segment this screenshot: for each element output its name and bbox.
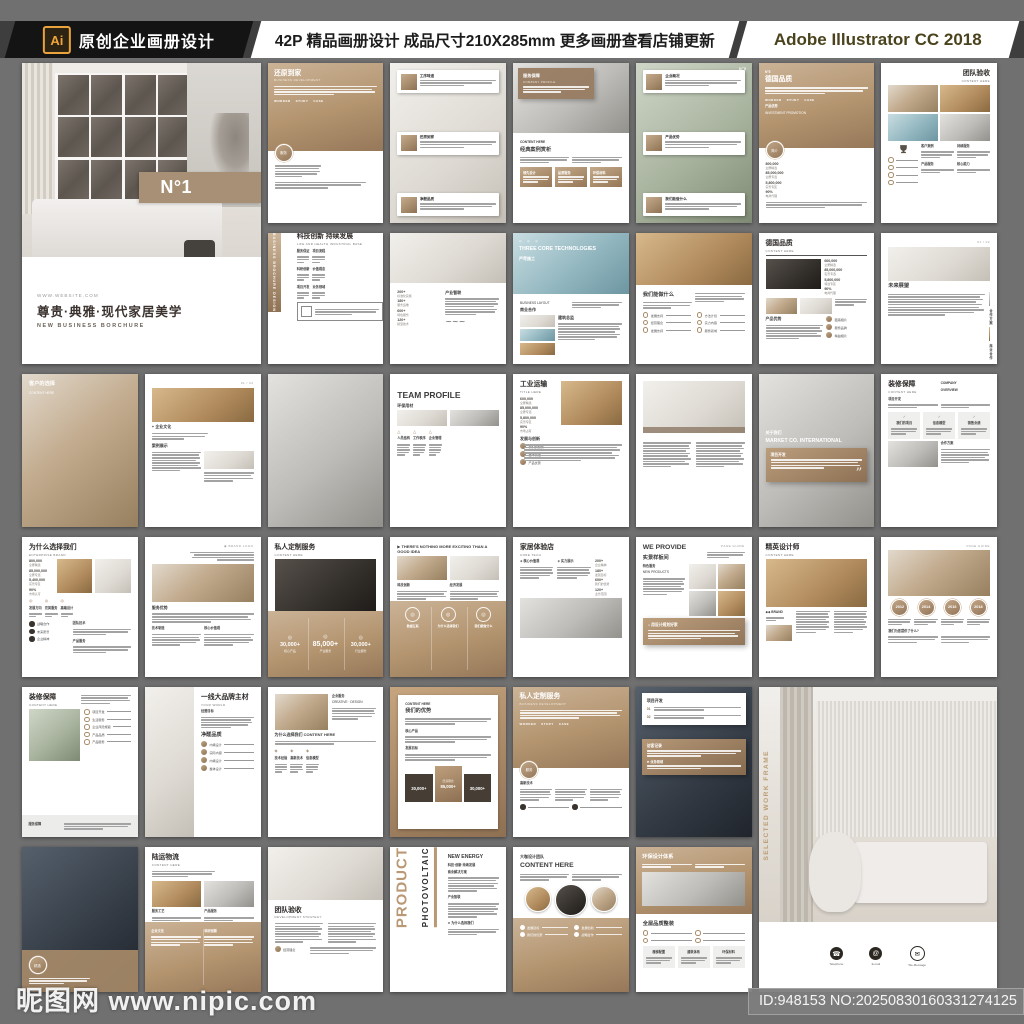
col: ◈ 实力展示 bbox=[557, 559, 590, 580]
message-icon: ✉ bbox=[910, 946, 925, 961]
line bbox=[306, 764, 319, 766]
line bbox=[716, 957, 742, 959]
cell bbox=[888, 403, 937, 409]
stat-icon: ◎ bbox=[359, 635, 363, 641]
pad: 大咖设计团队CONTENT HERE bbox=[513, 847, 629, 918]
photo-placeholder bbox=[397, 556, 446, 580]
text-label: COMPANY bbox=[941, 381, 990, 385]
bullet-item: 战略合作 bbox=[29, 621, 70, 627]
placeholder-lines bbox=[891, 427, 917, 436]
line bbox=[445, 311, 495, 313]
line bbox=[405, 723, 455, 725]
line bbox=[420, 203, 496, 205]
line bbox=[194, 554, 254, 556]
placeholder-lines bbox=[524, 443, 622, 462]
cell bbox=[275, 922, 323, 944]
line bbox=[397, 449, 409, 451]
page-why-choose-us: 为什么选择我们ENTERPRISE BRAND800,000全屋精选85,000… bbox=[22, 537, 138, 677]
band: 服务保障 bbox=[22, 815, 138, 837]
line bbox=[275, 771, 282, 773]
line bbox=[201, 727, 231, 729]
page-stats-signature: 200+标准化实施180+服务运维600+特色服务120+模型技术产业智联~∼~ bbox=[390, 233, 506, 364]
line bbox=[152, 873, 212, 875]
section-title: 德国品质CONTENT HERE bbox=[766, 240, 868, 256]
line bbox=[152, 619, 252, 621]
cell bbox=[888, 441, 937, 467]
line bbox=[695, 296, 742, 298]
section-title: 团队验收DEVELOPMENT STRATEGY bbox=[275, 907, 377, 920]
pad: 为什么选择我们ENTERPRISE BRAND800,000全屋精选85,000… bbox=[22, 537, 138, 677]
photo-placeholder bbox=[888, 247, 990, 281]
line bbox=[696, 458, 744, 460]
section-title: 私人定制服务BUSINESS DEVELOPMENT bbox=[520, 693, 623, 706]
text-label: 实景样板间 bbox=[643, 555, 704, 562]
line bbox=[695, 864, 745, 866]
line bbox=[707, 557, 729, 559]
col: 我们能做什么 bbox=[643, 292, 692, 310]
text-label: 我们为您提供了什么? bbox=[888, 629, 990, 633]
bullet-item: 实际内容 bbox=[201, 749, 254, 755]
line bbox=[766, 338, 799, 340]
placeholder-lines bbox=[557, 566, 590, 580]
page-classic-cases: 服务保障COMPANY PROFILECONTENT HERE经典案例赏析领先设… bbox=[513, 63, 629, 223]
card-body: 企业概况 bbox=[665, 74, 741, 88]
bullet-line bbox=[224, 752, 253, 753]
title-en: YOUR WORLD bbox=[201, 703, 254, 707]
stat-label: 实景专选 bbox=[824, 272, 867, 276]
photo-placeholder bbox=[766, 625, 793, 641]
row bbox=[766, 298, 868, 314]
placeholder-lines bbox=[766, 616, 793, 622]
text-label: CREATIVE · DESIGN bbox=[332, 700, 376, 704]
section-title: 为什么选择我们ENTERPRISE BRAND bbox=[29, 544, 131, 557]
line bbox=[523, 89, 585, 91]
page-tech-innovation: BUSINESS BROCHURE DESIGN科技创新 持续发展LIFE AN… bbox=[268, 233, 384, 364]
placeholder-lines bbox=[297, 273, 310, 282]
line bbox=[593, 179, 618, 181]
placeholder-lines bbox=[413, 443, 426, 457]
line bbox=[765, 93, 825, 95]
feature-icon: ◈ bbox=[275, 748, 288, 753]
feature-col: 业务领域 bbox=[312, 285, 325, 300]
line bbox=[888, 304, 982, 306]
line bbox=[941, 642, 970, 644]
row: 我们的服务技术管理产品优势 bbox=[520, 443, 622, 465]
contact-label: E-mail bbox=[872, 962, 881, 966]
pad: 装修保障CONTENT HERE项目开发生活服务企业风险规避产品品质产品服务 bbox=[22, 687, 138, 816]
section-title: 装修保障CONTENT HERE bbox=[29, 694, 78, 707]
line bbox=[520, 569, 552, 571]
pad: 简介800,000全屋精选85,000,000全屋专选5,800,000实景专区… bbox=[759, 148, 875, 223]
row bbox=[275, 922, 377, 944]
col: 产品优势 bbox=[766, 316, 824, 340]
row: 装修保障CONTENT HERE bbox=[29, 694, 131, 707]
line bbox=[73, 652, 107, 654]
front-cover: N°1WWW.WEBSITE.COM尊贵·典雅·现代家居美学NEW BUSINE… bbox=[22, 63, 261, 364]
line bbox=[201, 724, 248, 726]
placeholder-lines bbox=[81, 694, 130, 705]
bullet-dot bbox=[643, 327, 649, 333]
text-label: 净醛品质 bbox=[201, 732, 254, 739]
bullet-line bbox=[666, 315, 691, 316]
cell: ◎我们能做什么 bbox=[467, 607, 500, 670]
cell bbox=[397, 410, 446, 426]
line bbox=[957, 154, 988, 156]
stat-label: 核心产品 bbox=[284, 649, 296, 653]
text-label: 大咖设计团队 bbox=[520, 854, 622, 859]
col: ◈ 核心价值观 bbox=[520, 559, 553, 580]
marble-tile bbox=[91, 117, 122, 157]
bullet-line bbox=[596, 934, 622, 935]
placeholder-lines bbox=[275, 740, 377, 746]
line bbox=[926, 431, 951, 433]
bullet-label: 战略合作 bbox=[581, 932, 593, 937]
cell: ◈ 核心价值观 bbox=[520, 559, 553, 596]
row: 装修保障CONTENT HERECOMPANYOVERVIEW bbox=[888, 381, 990, 394]
bullet-item bbox=[572, 804, 621, 810]
placeholder-lines bbox=[716, 956, 742, 965]
chip-title: 环保材料 bbox=[593, 170, 619, 175]
line bbox=[275, 168, 319, 170]
bullet-dot bbox=[643, 312, 649, 318]
line bbox=[572, 157, 621, 159]
thumb-chip bbox=[401, 135, 417, 151]
stat: ◎30,000+行业服务 bbox=[345, 618, 377, 670]
line bbox=[643, 450, 687, 452]
pad: 工业运输TITLE HERE600,000全屋精选85,000,000全屋专选5… bbox=[513, 374, 629, 527]
photo-card: 我们能做什么 bbox=[643, 193, 745, 216]
line bbox=[429, 449, 441, 451]
placeholder-lines bbox=[312, 291, 325, 300]
feature-col: ◎完美服务 bbox=[45, 598, 58, 618]
placeholder-lines bbox=[274, 85, 377, 96]
line bbox=[771, 465, 861, 467]
bullet-label: 产品服务 bbox=[92, 739, 104, 744]
line bbox=[834, 611, 867, 613]
bullet-list bbox=[695, 930, 744, 943]
page-team-acceptance: 团队验收CONTENT HERE客户案例产品服务持续服务核心能力 bbox=[881, 63, 997, 223]
tan-card: 访客记录⊕ 业务领域 bbox=[642, 739, 746, 775]
cell bbox=[555, 788, 587, 802]
line bbox=[450, 598, 479, 600]
feature-col: ◈信息模型 bbox=[306, 748, 319, 773]
marble-tile bbox=[58, 117, 89, 157]
stat: 90%电商代理 bbox=[824, 287, 867, 295]
line bbox=[888, 636, 937, 638]
bullet-line bbox=[545, 934, 568, 935]
line bbox=[557, 577, 576, 579]
row: 战略合作未来愿景企业精神团队技术产品服务 bbox=[29, 621, 131, 654]
pad: CONTENT HERE经典案例赏析领先设计品质服务环保材料 bbox=[513, 133, 629, 223]
stat: 600,000全屋精选 bbox=[520, 397, 557, 405]
photo-placeholder bbox=[204, 451, 253, 469]
cell bbox=[145, 687, 194, 838]
photo-placeholder bbox=[268, 847, 384, 899]
text-label: 服务工艺 bbox=[152, 909, 201, 913]
text-label: 经济发展 bbox=[450, 583, 499, 587]
row: 工业运输TITLE HERE600,000全屋精选85,000,000全屋专选5… bbox=[520, 381, 622, 433]
placeholder-lines bbox=[61, 612, 74, 618]
col: 持续服务核心能力 bbox=[957, 144, 990, 175]
timeline-item: 2012 bbox=[888, 599, 911, 626]
stat: 85,000,000全屋专选 bbox=[520, 406, 557, 414]
gray-card: ✓销售业绩 bbox=[958, 412, 990, 439]
line bbox=[297, 256, 310, 258]
line bbox=[665, 208, 709, 210]
line bbox=[647, 750, 741, 752]
line bbox=[520, 575, 550, 577]
line bbox=[450, 596, 498, 598]
text-label: 核心价值观 bbox=[204, 626, 253, 630]
line bbox=[557, 572, 590, 574]
cell: 我们的服务技术管理产品优势 bbox=[520, 443, 521, 465]
cell bbox=[654, 706, 741, 712]
speech-card: 服务保障COMPANY PROFILE bbox=[518, 68, 594, 99]
text-label: 客户的选择 bbox=[29, 381, 131, 388]
line bbox=[413, 454, 420, 456]
line bbox=[204, 478, 252, 480]
stat-label: 实景专区 bbox=[766, 185, 868, 189]
photo-placeholder bbox=[718, 591, 745, 616]
line bbox=[204, 917, 253, 919]
col: 服务工艺 bbox=[152, 909, 201, 922]
pad: 一线大品牌主材YOUR WORLD经营目标净醛品质内墙设计实际内容内墙设计整体设… bbox=[194, 687, 261, 778]
tag: CASE bbox=[559, 722, 569, 726]
line bbox=[448, 934, 478, 936]
section-title: 德国品质 bbox=[765, 76, 868, 84]
text-label: 未来展望 bbox=[888, 283, 990, 290]
row: 经营理念 bbox=[275, 946, 377, 955]
placeholder-lines bbox=[297, 291, 310, 300]
stat-label: 全屋精选 bbox=[824, 263, 867, 267]
line bbox=[941, 624, 954, 626]
line bbox=[707, 554, 743, 556]
stat: 5,800,000实景专区 bbox=[520, 416, 557, 424]
gray-card: 环保材料 bbox=[713, 946, 745, 968]
bullet-line bbox=[720, 330, 745, 331]
feature-label: 工作秩序 bbox=[413, 436, 426, 440]
photo-placeholder bbox=[145, 687, 194, 838]
line bbox=[413, 444, 426, 446]
col: 技术制造 bbox=[152, 626, 201, 647]
tan-card-title: ⌂ 用设计规划好家 bbox=[648, 623, 740, 628]
footnote-box bbox=[297, 302, 384, 321]
bullet-line bbox=[651, 933, 692, 934]
line bbox=[204, 939, 251, 941]
photo-placeholder bbox=[888, 441, 937, 467]
placeholder-lines bbox=[665, 203, 741, 210]
row-number: 02 bbox=[647, 715, 651, 719]
text-label: 产业智联 bbox=[445, 290, 499, 295]
gray-card-title: 环保材料 bbox=[716, 949, 742, 954]
placeholder-lines bbox=[888, 292, 985, 316]
line bbox=[448, 888, 498, 890]
line bbox=[665, 80, 741, 82]
placeholder-lines bbox=[64, 822, 131, 831]
line bbox=[654, 707, 741, 709]
bullet-dot bbox=[695, 938, 701, 944]
placeholder-lines bbox=[961, 427, 987, 436]
bullet-dot bbox=[888, 172, 894, 178]
band: 环保设计体系 bbox=[636, 847, 752, 914]
placeholder-lines bbox=[328, 922, 376, 944]
text-label: 产品服务 bbox=[204, 909, 253, 913]
stat-label: 全屋精选 bbox=[520, 401, 557, 405]
title-zh: 德国品质 bbox=[766, 240, 868, 248]
line bbox=[328, 936, 373, 938]
line bbox=[73, 629, 131, 631]
nipic-watermark: 昵图网 www.nipic.com bbox=[16, 979, 317, 1018]
line bbox=[888, 301, 975, 303]
line bbox=[957, 169, 990, 171]
feature-col: ◎高端设计 bbox=[61, 598, 74, 618]
line bbox=[572, 876, 619, 878]
vertical-caption: SELECTED WORK FRAME bbox=[763, 750, 770, 860]
line bbox=[61, 616, 68, 618]
text-label: ⊙ 为什么选择我们 bbox=[448, 921, 499, 925]
line bbox=[643, 305, 690, 307]
bullet-dot bbox=[888, 180, 894, 186]
title-en: ENTERPRISE BRAND bbox=[29, 553, 131, 557]
line bbox=[275, 171, 321, 173]
line bbox=[332, 710, 374, 712]
tag: CASE bbox=[804, 98, 814, 102]
title-zh: 装修保障 bbox=[29, 694, 78, 702]
cell bbox=[328, 922, 376, 944]
text-label: 经典案例赏析 bbox=[520, 147, 622, 154]
cell: ◎30,000+行业服务 bbox=[344, 618, 377, 670]
bullet-dot bbox=[520, 932, 525, 937]
line bbox=[523, 176, 549, 178]
ring-icon: ◎ bbox=[405, 607, 420, 622]
text-label: 服务优势 bbox=[152, 605, 254, 610]
line bbox=[520, 162, 549, 164]
line bbox=[834, 616, 867, 618]
line bbox=[796, 611, 829, 613]
bullet-list bbox=[572, 804, 621, 810]
row: ✓我们的项目✓信息模型✓销售业绩 bbox=[888, 412, 990, 439]
ring-icon: ◎ bbox=[441, 607, 456, 622]
line bbox=[834, 619, 864, 621]
line bbox=[420, 208, 464, 210]
cell: 图案相片服务品牌精益相片 bbox=[826, 316, 867, 340]
line bbox=[914, 621, 936, 623]
placeholder-lines bbox=[590, 788, 622, 802]
pad: 德国品质CONTENT HERE600,000全屋精选85,000,000实景专… bbox=[759, 233, 875, 364]
line bbox=[696, 453, 743, 455]
row bbox=[643, 930, 745, 943]
placeholder-lines bbox=[306, 762, 319, 773]
line bbox=[275, 928, 322, 930]
title-en: CONTENT HERE bbox=[766, 249, 868, 253]
title-zh: 团队验收 bbox=[888, 70, 990, 78]
line bbox=[555, 794, 586, 796]
line bbox=[921, 157, 940, 159]
text-label: 产品服务 bbox=[921, 162, 954, 166]
stat-box: 经营理念85,000+ bbox=[435, 766, 462, 802]
cell bbox=[204, 881, 253, 907]
marble-tile bbox=[125, 75, 156, 115]
cell: COMPANYOVERVIEW bbox=[941, 381, 990, 394]
text-label: ◈ 实力展示 bbox=[557, 559, 590, 563]
row: 项目开发生活服务企业风险规避产品品质产品服务 bbox=[29, 709, 131, 761]
line bbox=[429, 454, 436, 456]
line bbox=[429, 447, 441, 449]
text-label: 商业合作 bbox=[989, 344, 990, 360]
text-label: 企业服务 bbox=[332, 694, 376, 698]
line bbox=[315, 314, 352, 316]
row bbox=[643, 441, 745, 468]
section-title: 还原到家BUSINESS DEVELOPMENT bbox=[274, 70, 377, 83]
stat: 600+特色服务 bbox=[397, 309, 440, 317]
header-right-tab: Adobe Illustrator CC 2018 bbox=[737, 21, 1020, 58]
card-body: 净醛品质 bbox=[420, 197, 496, 211]
title-zh: 家居体验店 bbox=[520, 544, 622, 552]
page-guarantee-bullets: 装修保障CONTENT HERE项目开发生活服务企业风险规避产品品质产品服务服务… bbox=[22, 687, 138, 838]
card-title: 净醛品质 bbox=[420, 197, 496, 202]
cell: 科技创新 bbox=[397, 556, 446, 600]
page-eco-design: 环保设计体系全屋品质整装楼梯配置建筑体系环保材料 bbox=[636, 847, 752, 992]
text-label: 科技·创新·持续发展 bbox=[448, 863, 499, 867]
text-label: 发展与创新 bbox=[520, 436, 622, 441]
line bbox=[312, 274, 325, 276]
line bbox=[766, 333, 818, 335]
line bbox=[420, 144, 492, 146]
band: CONTENT HERE我们的优势核心产品发展目标30,000+经营理念85,0… bbox=[390, 687, 506, 838]
line bbox=[643, 307, 672, 309]
line bbox=[405, 736, 491, 738]
line bbox=[520, 874, 569, 876]
placeholder-lines bbox=[695, 292, 744, 303]
cell: ◎85,000+产业服务 bbox=[308, 618, 341, 670]
bullet-item: 发展支持 bbox=[643, 327, 691, 333]
photo-placeholder bbox=[766, 298, 798, 314]
line bbox=[696, 445, 742, 447]
page-why-choose-content: 企业服务CREATIVE · DESIGN为什么选择我们 CONTENT HER… bbox=[268, 687, 384, 838]
placeholder-lines bbox=[73, 628, 131, 637]
bullet-list: 经营理念 bbox=[275, 946, 308, 952]
line bbox=[654, 709, 704, 711]
bullet-dot bbox=[520, 925, 525, 930]
line bbox=[558, 328, 620, 330]
line bbox=[771, 467, 824, 469]
page-german-quality-detail: 德国品质CONTENT HERE600,000全屋精选85,000,000实景专… bbox=[759, 233, 875, 364]
title-en: CONTENT HERE bbox=[152, 863, 254, 867]
bullet-dot bbox=[201, 741, 207, 747]
row bbox=[152, 881, 254, 907]
cell: ◆◆ BRAND bbox=[766, 610, 793, 641]
page-bedroom-article bbox=[636, 374, 752, 527]
cell bbox=[941, 403, 990, 409]
cell bbox=[450, 410, 499, 426]
line bbox=[941, 449, 990, 451]
bullet-dot bbox=[84, 724, 90, 730]
page-customer-choice-photo: 客户的选择CONTENT HERE bbox=[22, 374, 138, 527]
bullet-dot bbox=[643, 930, 649, 936]
cell bbox=[835, 298, 867, 314]
placeholder-lines bbox=[429, 443, 442, 457]
photo-grid bbox=[888, 85, 990, 141]
line bbox=[558, 334, 620, 336]
gray-card: 楼梯配置 bbox=[643, 946, 675, 968]
pad: 01 / 02未来展望合作方案商业合作 bbox=[881, 233, 997, 364]
bullet-line bbox=[720, 315, 745, 316]
line bbox=[648, 630, 740, 632]
feature-label: 高端设计 bbox=[61, 606, 74, 610]
page-what-we-can-do: 我们能做什么发展支持方法计划经营理念实力内容发展支持服务领域 bbox=[636, 233, 752, 364]
line bbox=[642, 864, 692, 866]
placeholder-lines bbox=[926, 427, 952, 436]
